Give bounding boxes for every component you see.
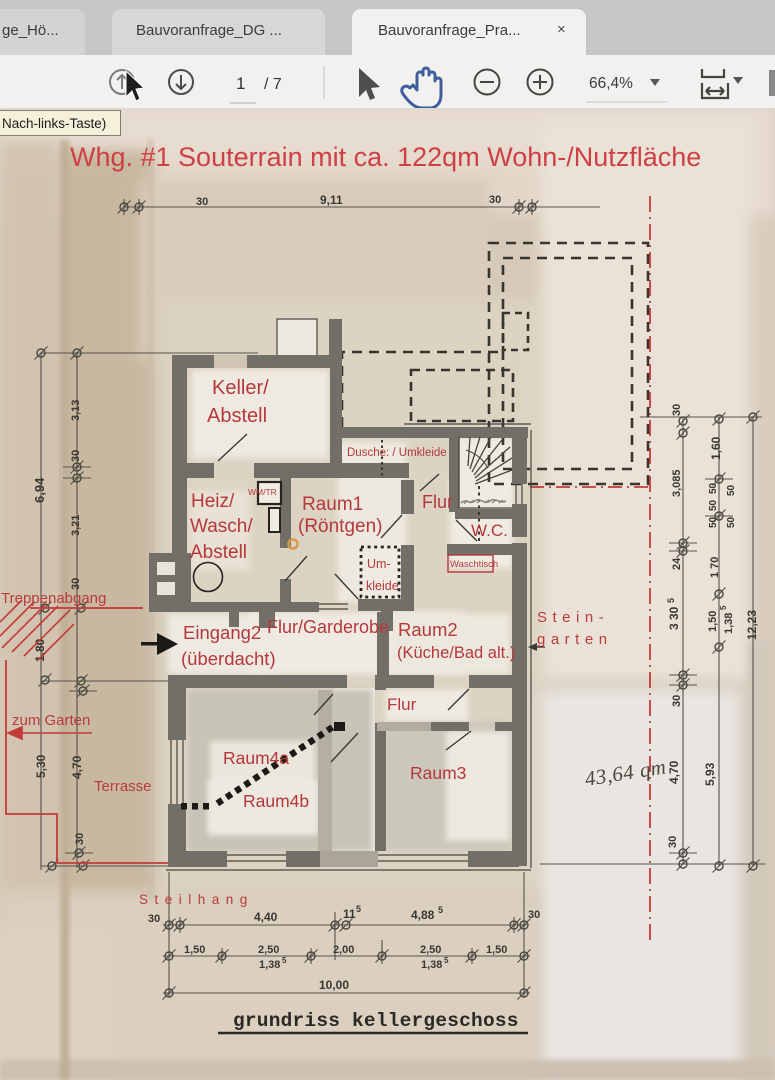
svg-text:66,4%: 66,4%: [589, 75, 633, 92]
svg-text:W.C.: W.C.: [471, 521, 508, 540]
svg-text:Abstell: Abstell: [190, 542, 247, 563]
svg-text:garten: garten: [537, 631, 613, 648]
svg-text:/ 7: / 7: [264, 76, 282, 93]
svg-text:1,60: 1,60: [709, 436, 723, 460]
svg-text:1,38: 1,38: [421, 959, 442, 971]
svg-text:5: 5: [444, 956, 449, 965]
svg-text:1,50: 1,50: [486, 944, 507, 956]
svg-text:Flur: Flur: [422, 492, 453, 512]
svg-text:30: 30: [148, 913, 160, 925]
svg-text:1 70: 1 70: [709, 557, 721, 578]
svg-text:5: 5: [719, 605, 728, 610]
svg-text:30: 30: [196, 196, 208, 208]
svg-text:50: 50: [708, 482, 719, 494]
svg-text:WM/TR: WM/TR: [248, 487, 277, 497]
svg-text:9,11: 9,11: [320, 193, 343, 207]
svg-text:Raum1: Raum1: [302, 494, 363, 515]
svg-text:grundriss kellergeschoss: grundriss kellergeschoss: [233, 1010, 519, 1032]
svg-text:Raum3: Raum3: [410, 763, 466, 783]
svg-text:30: 30: [70, 578, 82, 590]
svg-text:3 30: 3 30: [667, 606, 681, 630]
svg-text:50: 50: [708, 499, 719, 511]
svg-text:50: 50: [726, 484, 737, 496]
svg-text:4,88: 4,88: [411, 908, 435, 922]
svg-text:Abstell: Abstell: [207, 405, 267, 427]
svg-text:Waschtisch: Waschtisch: [450, 559, 498, 570]
svg-text:1,50: 1,50: [707, 611, 719, 632]
svg-text:30: 30: [671, 404, 683, 416]
svg-text:30: 30: [528, 909, 540, 921]
svg-text:5,93: 5,93: [703, 762, 717, 786]
svg-text:5,30: 5,30: [34, 754, 48, 778]
svg-text:4,70: 4,70: [70, 755, 84, 779]
svg-text:(überdacht): (überdacht): [181, 648, 276, 669]
svg-text:2,50: 2,50: [420, 944, 441, 956]
svg-text:3,13: 3,13: [70, 400, 82, 421]
svg-text:2,00: 2,00: [333, 944, 354, 956]
svg-text:Eingang2: Eingang2: [183, 622, 261, 643]
svg-text:kleide: kleide: [366, 579, 399, 593]
svg-text:11: 11: [343, 907, 356, 921]
svg-text:1,50: 1,50: [184, 944, 205, 956]
svg-text:30: 30: [671, 695, 683, 707]
svg-text:5: 5: [438, 905, 443, 915]
svg-text:(Küche/Bad alt.): (Küche/Bad alt.): [397, 644, 515, 662]
svg-text:Um-: Um-: [367, 557, 391, 571]
svg-text:Stein-: Stein-: [537, 609, 609, 626]
svg-text:(Röntgen): (Röntgen): [298, 516, 383, 537]
svg-text:Whg. #1 Souterrain mit ca. 122: Whg. #1 Souterrain mit ca. 122qm Wohn-/N…: [70, 142, 701, 172]
svg-text:30: 30: [489, 194, 501, 206]
svg-text:3,21: 3,21: [70, 515, 82, 536]
svg-text:2,50: 2,50: [258, 944, 279, 956]
svg-text:6,94: 6,94: [32, 477, 47, 503]
svg-text:24: 24: [671, 557, 683, 570]
svg-text:Keller/: Keller/: [212, 377, 269, 399]
svg-text:Flur: Flur: [387, 695, 417, 714]
svg-text:4,40: 4,40: [254, 910, 278, 924]
svg-text:1,38: 1,38: [259, 959, 280, 971]
svg-text:12,23: 12,23: [745, 610, 759, 640]
svg-text:10,00: 10,00: [319, 978, 349, 992]
svg-text:5: 5: [356, 904, 361, 914]
svg-text:Raum2: Raum2: [398, 619, 458, 640]
svg-text:50: 50: [726, 516, 737, 528]
svg-text:4,70: 4,70: [667, 760, 681, 784]
svg-text:zum Garten: zum Garten: [12, 712, 90, 729]
svg-text:1,38: 1,38: [723, 613, 735, 634]
svg-text:Flur/Garderobe: Flur/Garderobe: [267, 617, 389, 637]
svg-text:5: 5: [666, 598, 676, 603]
svg-text:Dusche: / Umkleide: Dusche: / Umkleide: [347, 447, 447, 459]
svg-text:30: 30: [70, 450, 82, 462]
svg-text:Heiz/: Heiz/: [191, 491, 235, 512]
svg-text:30: 30: [74, 833, 86, 845]
svg-text:50: 50: [708, 516, 719, 528]
svg-text:3,085: 3,085: [671, 469, 683, 497]
svg-text:Wasch/: Wasch/: [190, 516, 253, 537]
svg-text:Treppenabgang: Treppenabgang: [1, 590, 106, 607]
svg-text:Steilhang: Steilhang: [139, 892, 254, 907]
svg-text:Raum4a: Raum4a: [223, 748, 289, 768]
svg-text:30: 30: [667, 836, 679, 848]
svg-text:1: 1: [236, 74, 245, 93]
svg-text:5: 5: [282, 956, 287, 965]
svg-text:Raum4b: Raum4b: [243, 791, 309, 811]
svg-text:Terrasse: Terrasse: [94, 778, 152, 795]
